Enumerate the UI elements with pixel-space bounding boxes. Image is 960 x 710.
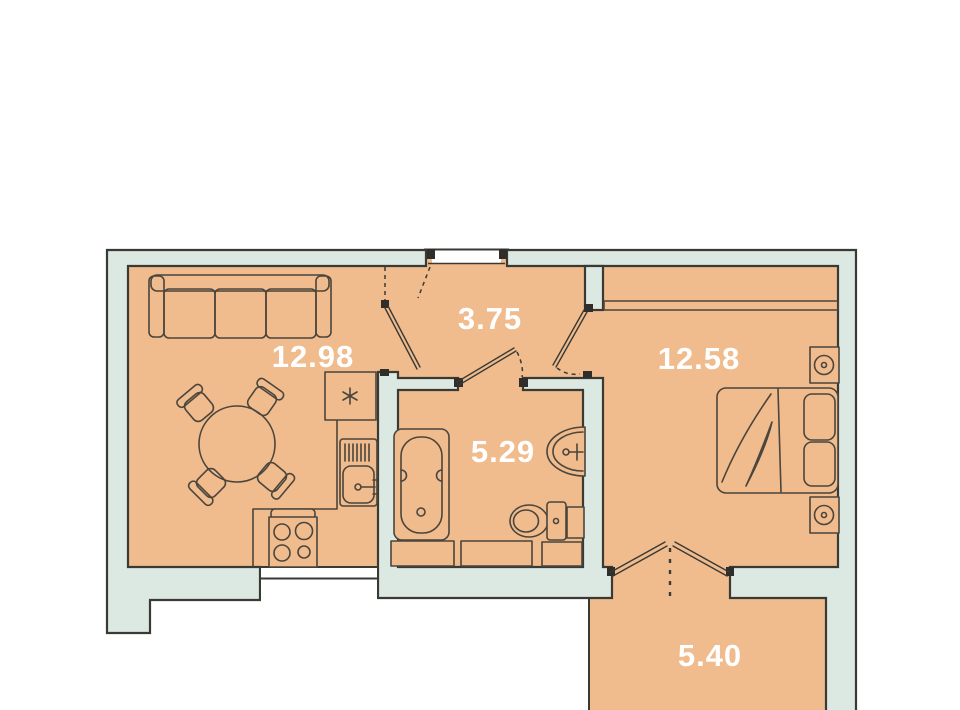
entrance-gap bbox=[432, 250, 501, 264]
nightstand-icon bbox=[810, 497, 839, 533]
stove-icon bbox=[269, 509, 317, 567]
bathroom-cabinet bbox=[567, 507, 584, 538]
window-gap bbox=[261, 566, 377, 603]
fridge-icon bbox=[325, 372, 376, 420]
bathroom-area-label: 5.29 bbox=[471, 434, 535, 469]
door-jamb bbox=[499, 249, 507, 259]
floor-plan-drawing: 12.98 3.75 5.29 12.58 5.40 bbox=[0, 0, 960, 710]
toilet-icon bbox=[510, 502, 566, 540]
hall-bedroom-wall bbox=[585, 266, 603, 310]
bathtub-icon bbox=[394, 429, 449, 540]
living-kitchen-area-label: 12.98 bbox=[272, 339, 355, 374]
double-bed-icon bbox=[717, 388, 838, 493]
floor-plan-page: 12.98 3.75 5.29 12.58 5.40 bbox=[0, 0, 960, 710]
balcony-area-label: 5.40 bbox=[678, 638, 742, 673]
nightstand-icon bbox=[810, 347, 839, 383]
dining-table-icon bbox=[199, 406, 275, 482]
hallway-area-label: 3.75 bbox=[458, 301, 522, 336]
washing-machine-icon bbox=[391, 541, 582, 566]
kitchen-window bbox=[260, 566, 378, 603]
bedroom-area-label: 12.58 bbox=[658, 341, 741, 376]
door-jamb bbox=[427, 249, 435, 259]
